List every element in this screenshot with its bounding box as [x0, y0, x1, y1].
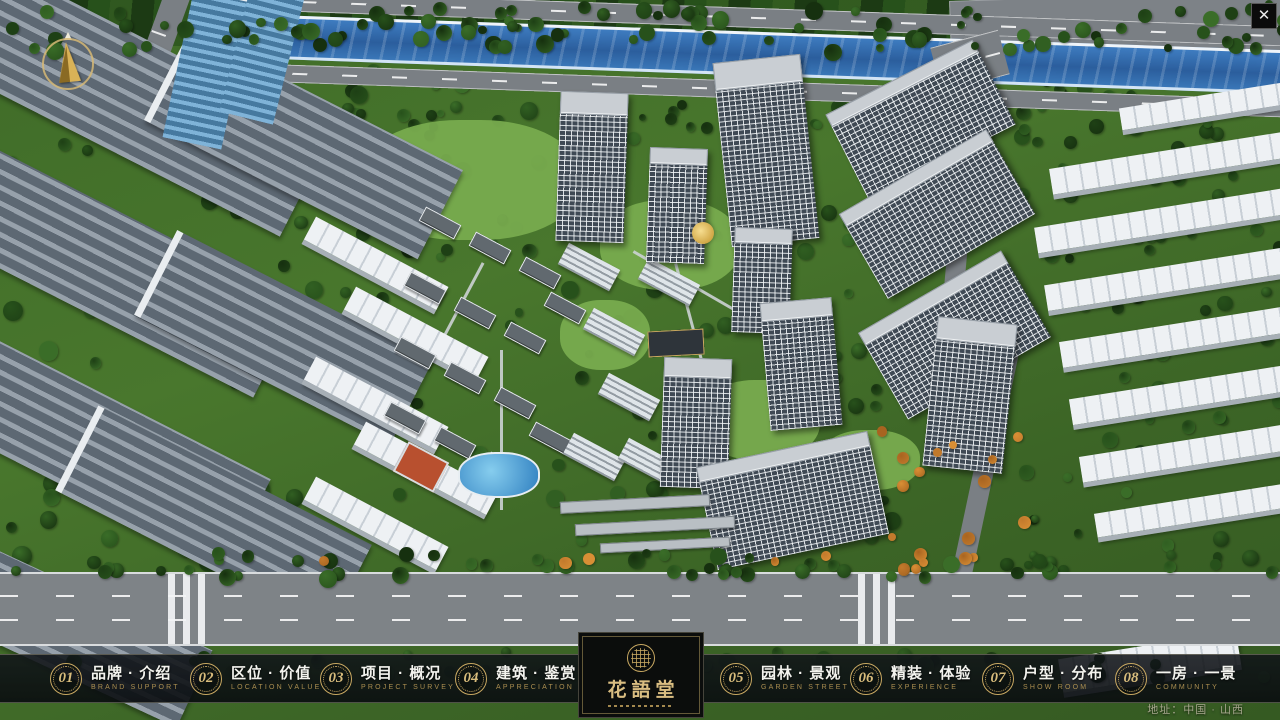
badge-number: 05 — [729, 670, 744, 687]
tree — [559, 557, 572, 570]
nav-label-en: EXPERIENCE — [891, 684, 971, 692]
nav-label-en: COMMUNITY — [1156, 684, 1236, 692]
compass-north-indicator — [38, 34, 98, 94]
tree — [1182, 420, 1195, 433]
tree — [1213, 531, 1229, 547]
tree — [242, 550, 255, 563]
tree — [771, 557, 779, 565]
tree — [461, 25, 476, 40]
compass-needle-icon — [55, 41, 81, 83]
tree — [480, 559, 492, 571]
tree — [1164, 561, 1176, 573]
highrise-tower — [555, 91, 628, 243]
tree — [764, 36, 773, 45]
tree — [3, 301, 23, 321]
tree — [1250, 42, 1262, 54]
tree — [663, 0, 680, 17]
tree — [1228, 171, 1238, 181]
midrise-block — [598, 373, 660, 421]
badge-number: 01 — [59, 670, 74, 687]
badge-number: 02 — [199, 670, 214, 687]
nav-item-brand[interactable]: 01 品牌 · 介绍BRAND SUPPORT — [50, 655, 180, 702]
tree — [1075, 22, 1091, 38]
nav-label-zh: 区位 · 价值 — [231, 665, 321, 682]
badge-number: 06 — [859, 670, 874, 687]
tree — [971, 42, 979, 50]
tree — [393, 488, 406, 501]
tree — [597, 8, 610, 21]
nav-badge-05: 05 — [720, 663, 752, 695]
tree — [1065, 254, 1074, 263]
tree — [212, 547, 225, 560]
tree — [1013, 432, 1024, 443]
tree — [249, 34, 259, 44]
nav-item-project[interactable]: 03 项目 · 概况PROJECT SURVEY — [320, 655, 455, 702]
tree — [627, 132, 640, 145]
nav-label-zh: 园林 · 景观 — [761, 665, 849, 682]
tree — [848, 398, 864, 414]
tree — [686, 122, 696, 132]
tree — [450, 101, 462, 113]
nav-label-zh: 建筑 · 鉴赏 — [496, 665, 576, 682]
crosswalk — [168, 574, 212, 644]
app-window: ✕ 01 品牌 · 介绍BRAND SUPPORT 02 区位 · 价值LOCA… — [0, 0, 1280, 720]
tree — [897, 480, 909, 492]
nav-label-zh: 项目 · 概况 — [361, 665, 455, 682]
tree — [873, 28, 887, 42]
tree — [961, 8, 970, 17]
tree — [871, 384, 882, 395]
tree — [1121, 487, 1133, 499]
nav-badge-03: 03 — [320, 663, 352, 695]
tree — [1116, 23, 1127, 34]
tree — [691, 15, 707, 31]
courtyard-house — [504, 322, 547, 355]
tree — [1138, 9, 1152, 23]
midrise-block — [563, 433, 625, 481]
tree — [278, 260, 289, 271]
tree — [1119, 372, 1130, 383]
tree — [478, 26, 487, 35]
project-logo-box[interactable]: 花語堂 — [578, 632, 704, 718]
tree — [629, 35, 638, 44]
tree — [1210, 559, 1221, 570]
tree — [114, 7, 127, 20]
courtyard-house — [454, 297, 497, 330]
tree — [90, 357, 101, 368]
close-button[interactable]: ✕ — [1251, 3, 1277, 29]
tree — [441, 244, 453, 256]
warehouse-slab — [1044, 247, 1280, 316]
entrance-gate — [560, 494, 710, 514]
tree — [805, 2, 822, 19]
nav-item-garden[interactable]: 05 园林 · 景观GARDEN STREET — [720, 655, 849, 702]
tree — [141, 41, 152, 52]
tree — [433, 2, 447, 16]
tree — [677, 100, 687, 110]
tree — [498, 40, 512, 54]
nav-label-zh: 户型 · 分布 — [1023, 665, 1103, 682]
tree — [522, 244, 536, 258]
tree — [576, 534, 588, 546]
tree — [58, 138, 71, 151]
tree — [532, 554, 543, 565]
tree — [340, 287, 351, 298]
tree — [813, 121, 822, 130]
crosswalk — [858, 574, 902, 644]
nav-label-en: BRAND SUPPORT — [91, 684, 180, 692]
tree — [797, 243, 814, 260]
tree — [319, 556, 329, 566]
tree — [933, 448, 942, 457]
tree — [520, 102, 538, 120]
tree — [177, 21, 194, 38]
badge-number: 03 — [329, 670, 344, 687]
tree — [350, 86, 368, 104]
tree — [704, 563, 715, 574]
nav-item-room-view[interactable]: 08 一房 · 一景COMMUNITY — [1115, 655, 1236, 702]
tree — [919, 571, 931, 583]
tree — [39, 341, 59, 361]
tree — [319, 570, 337, 588]
tree — [914, 467, 924, 477]
close-icon: ✕ — [1258, 7, 1271, 24]
seal-emblem-icon — [627, 644, 655, 672]
tree — [256, 18, 265, 27]
project-logo-title: 花語堂 — [602, 675, 679, 702]
tree — [1222, 36, 1234, 48]
tree — [421, 14, 436, 29]
badge-number: 08 — [1124, 670, 1139, 687]
masterplan-3d-view[interactable] — [0, 0, 1280, 720]
tree — [274, 17, 288, 31]
nav-item-architecture[interactable]: 04 建筑 · 鉴赏APPRECIATION — [455, 655, 576, 702]
warehouse-slab — [1059, 306, 1280, 373]
tree — [229, 20, 247, 38]
tree — [642, 549, 651, 558]
tree — [710, 548, 726, 564]
address-text: 地址：中国 · 山西 — [1147, 701, 1244, 717]
nav-label-en: APPRECIATION — [496, 684, 576, 692]
nav-label-en: GARDEN STREET — [761, 684, 849, 692]
gold-landmark — [692, 222, 714, 244]
nav-label-en: PROJECT SURVEY — [361, 684, 455, 692]
tree — [876, 44, 884, 52]
tree — [528, 17, 543, 32]
tree — [837, 564, 851, 578]
tree — [378, 14, 393, 29]
tree — [6, 22, 19, 35]
tree — [397, 109, 410, 122]
tree — [1166, 550, 1176, 560]
tree — [426, 110, 437, 121]
tree — [1217, 296, 1232, 311]
tree — [824, 44, 841, 61]
tree — [583, 553, 596, 566]
tree — [551, 28, 564, 41]
tree — [101, 530, 118, 547]
tree — [184, 565, 194, 575]
tree — [404, 6, 414, 16]
tree — [1063, 473, 1072, 482]
tree — [1144, 245, 1154, 255]
tree — [653, 11, 663, 21]
tree — [1242, 550, 1259, 567]
nav-item-decoration[interactable]: 06 精装 · 体验EXPERIENCE — [850, 655, 971, 702]
nav-badge-07: 07 — [982, 663, 1014, 695]
tree — [731, 567, 742, 578]
tree — [1089, 119, 1104, 134]
tree — [1266, 566, 1278, 578]
nav-badge-01: 01 — [50, 663, 82, 695]
tree — [639, 114, 646, 121]
nav-item-floorplan[interactable]: 07 户型 · 分布SHOW ROOM — [982, 655, 1103, 702]
nav-label-zh: 精装 · 体验 — [891, 665, 971, 682]
tree — [466, 558, 478, 570]
tree — [1102, 432, 1118, 448]
nav-item-location[interactable]: 02 区位 · 价值LOCATION VALUE — [190, 655, 321, 702]
nav-label-en: LOCATION VALUE — [231, 684, 321, 692]
tree — [1023, 40, 1035, 52]
tree — [1261, 287, 1272, 298]
warehouse-slab — [1049, 131, 1280, 199]
tree — [973, 13, 981, 21]
tree — [745, 553, 755, 563]
tree — [957, 21, 965, 29]
tree — [515, 308, 524, 317]
courtyard-house — [434, 427, 477, 460]
pavilion — [647, 329, 704, 358]
tree — [1032, 137, 1042, 147]
nav-label-zh: 一房 · 一景 — [1156, 665, 1236, 682]
tree — [888, 533, 896, 541]
tree — [1018, 516, 1032, 530]
tree — [962, 532, 975, 545]
tree — [701, 122, 713, 134]
tree — [1242, 33, 1251, 42]
tree — [11, 566, 21, 576]
warehouse-slab — [1069, 365, 1280, 430]
tree — [912, 32, 927, 47]
tree — [294, 216, 308, 230]
tree — [1058, 31, 1070, 43]
tree — [1035, 36, 1051, 52]
tree — [851, 7, 860, 16]
nav-label-en: SHOW ROOM — [1023, 684, 1103, 692]
tree — [870, 401, 880, 411]
tree — [665, 113, 677, 125]
highrise-tower — [646, 147, 708, 264]
swimming-pool — [458, 452, 540, 498]
tree — [1200, 305, 1211, 316]
tree — [897, 452, 909, 464]
tree — [575, 371, 589, 385]
tree — [156, 566, 166, 576]
logo-subtitle-line — [608, 705, 674, 707]
tree — [437, 110, 444, 117]
tree — [1213, 411, 1226, 424]
tree — [1074, 529, 1082, 537]
tree — [1250, 224, 1262, 236]
tree — [978, 475, 991, 488]
tree — [648, 431, 657, 440]
tree — [1064, 136, 1077, 149]
tree — [40, 511, 57, 528]
tree — [740, 567, 755, 582]
tree — [659, 549, 671, 561]
tree — [82, 145, 93, 156]
nav-badge-06: 06 — [850, 663, 882, 695]
tree — [821, 551, 831, 561]
nav-label-zh: 品牌 · 介绍 — [91, 665, 180, 682]
highrise-tower — [760, 297, 843, 431]
tree — [1225, 7, 1238, 20]
tree — [1019, 465, 1033, 479]
nav-badge-02: 02 — [190, 663, 222, 695]
tree — [681, 8, 693, 20]
nav-badge-08: 08 — [1115, 663, 1147, 695]
tree — [578, 1, 591, 14]
tree — [1031, 515, 1040, 524]
tree — [552, 459, 564, 471]
tree — [43, 489, 60, 506]
tree — [561, 281, 579, 299]
nav-badge-04: 04 — [455, 663, 487, 695]
tree — [1011, 567, 1024, 580]
tree — [219, 569, 236, 586]
tree — [6, 522, 17, 533]
tree — [428, 550, 439, 561]
badge-number: 07 — [991, 670, 1006, 687]
tree — [392, 567, 409, 584]
tree — [702, 31, 716, 45]
tree — [413, 31, 429, 47]
tree — [436, 25, 452, 41]
badge-number: 04 — [464, 670, 479, 687]
tree — [821, 205, 837, 221]
courtyard-house — [519, 257, 562, 290]
tree — [844, 289, 853, 298]
